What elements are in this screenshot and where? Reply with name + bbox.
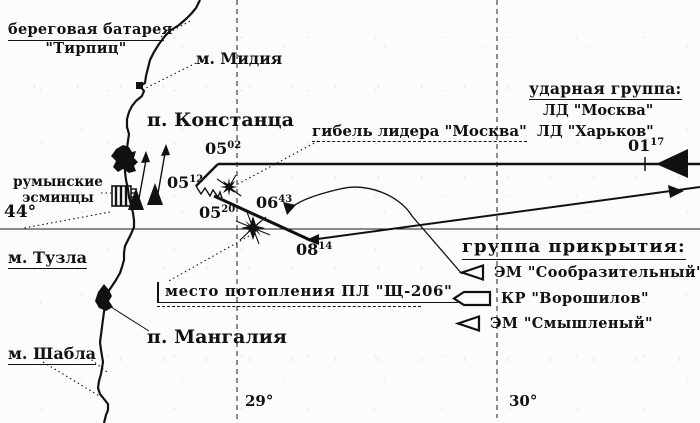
moskva-loss-label: гибель лидера "Москва" xyxy=(312,123,527,142)
port-mangalia-label: п. Мангалия xyxy=(147,327,287,349)
cover-ship-name-2: КР "Ворошилов" xyxy=(501,290,649,307)
time-min: 43 xyxy=(278,194,292,205)
cape-midia-marker xyxy=(136,82,143,89)
time-mark-0117: 0117 xyxy=(628,136,664,155)
map-graphics xyxy=(0,0,700,423)
strike-group-title: ударная группа: xyxy=(529,80,682,100)
constanta-city-mark xyxy=(111,145,138,173)
strike-group-ship-1: ЛД "Москва" xyxy=(543,103,653,120)
latitude-44-label: 44° xyxy=(4,203,36,223)
cover-ship-name-1: ЭМ "Сообразительный" xyxy=(494,264,700,281)
cover-group-item-1: ЭМ "Сообразительный" xyxy=(459,264,700,281)
mangalia-leader-line xyxy=(111,307,149,331)
time-mark-0814: 0814 xyxy=(296,240,332,259)
time-mark-0502: 0502 xyxy=(205,139,241,158)
coastal-battery-line2: "Тирпиц" xyxy=(8,41,164,58)
coastal-battery-label: береговая батарея "Тирпиц" xyxy=(8,22,164,57)
time-min: 12 xyxy=(189,174,203,185)
time-hour: 05 xyxy=(205,139,227,158)
time-min: 20 xyxy=(221,204,235,215)
romanian-destroyers-line1: румынские xyxy=(10,175,106,191)
sub-sinking-label: место потопления ПЛ "Щ-206" xyxy=(157,282,458,303)
cover-group-item-3: ЭМ "Смышленый" xyxy=(455,315,653,332)
destroyer-symbol xyxy=(455,315,481,332)
cover-ship-name-3: ЭМ "Смышленый" xyxy=(490,315,653,332)
longitude-30-label: 30° xyxy=(509,393,537,410)
coastline xyxy=(98,0,200,423)
time-mark-0512: 0512 xyxy=(167,173,203,192)
time-hour: 08 xyxy=(296,240,318,259)
time-hour: 05 xyxy=(167,173,189,192)
time-hour: 05 xyxy=(199,203,221,222)
time-min: 14 xyxy=(318,241,332,252)
time-mark-0520: 0520 xyxy=(199,203,235,222)
time-mark-0643: 0643 xyxy=(256,193,292,212)
destroyer-symbol xyxy=(459,264,485,281)
cover-group-item-2: КР "Ворошилов" xyxy=(452,290,649,307)
cape-tuzla-label: м. Тузла xyxy=(8,249,87,269)
time-hour: 01 xyxy=(628,136,650,155)
longitude-29-label: 29° xyxy=(245,393,273,410)
shch206-explosion-icon xyxy=(236,212,270,244)
east-arrowhead xyxy=(668,185,684,198)
coastal-battery-line1: береговая батарея xyxy=(8,22,164,41)
cape-shabla-label: м. Шабла xyxy=(8,345,96,365)
port-constanta-label: п. Констанца xyxy=(147,110,294,132)
cape-midia-label: м. Мидия xyxy=(196,50,282,68)
cover-group-title: группа прикрытия: xyxy=(462,237,686,260)
sub-sinking-underline xyxy=(157,306,421,307)
time-hour: 06 xyxy=(256,193,278,212)
time-min: 17 xyxy=(650,137,664,148)
naval-raid-map: береговая батарея "Тирпиц" м. Мидия п. К… xyxy=(0,0,700,423)
time-min: 02 xyxy=(227,140,241,151)
